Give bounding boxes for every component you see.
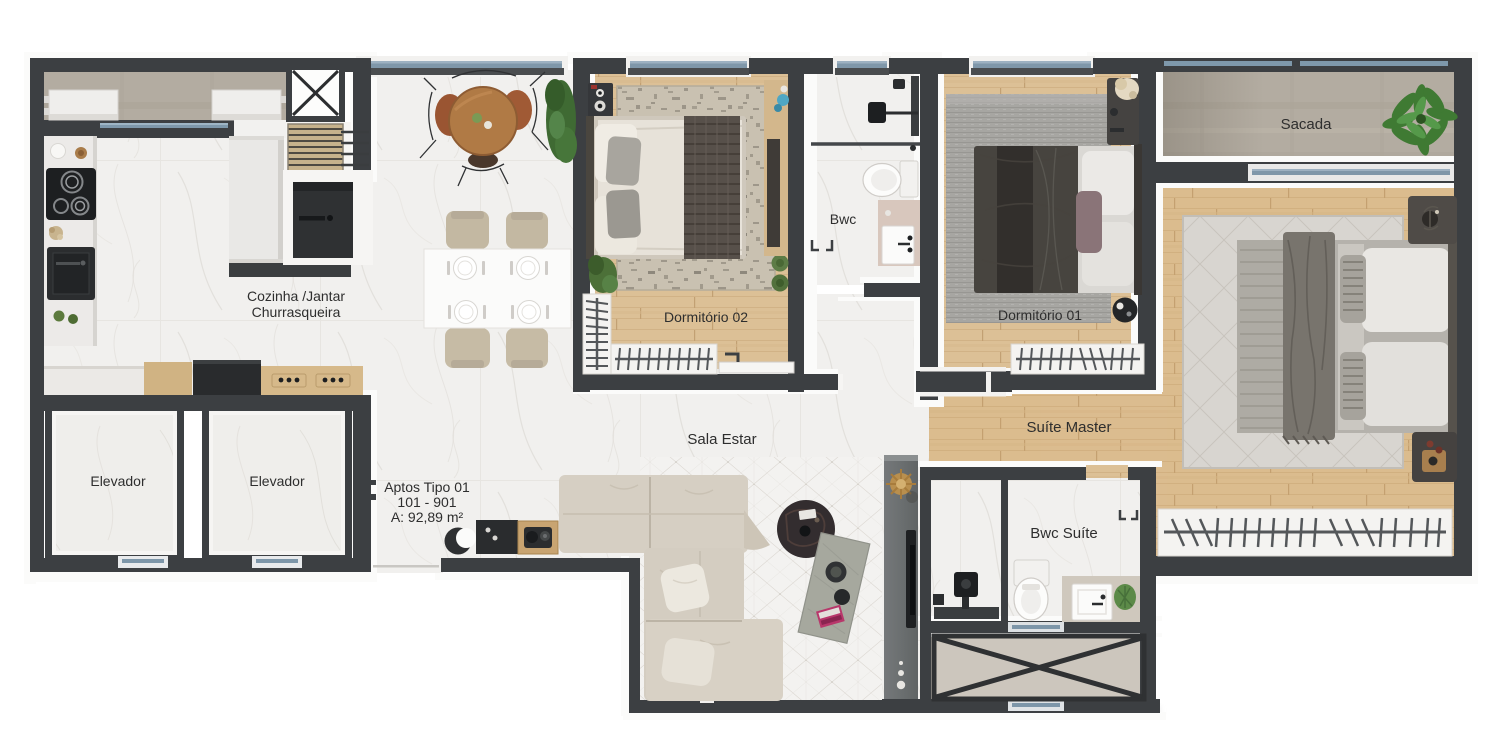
svg-text:Sacada: Sacada — [1281, 116, 1333, 133]
svg-text:Aptos Tipo 01: Aptos Tipo 01 — [384, 479, 470, 495]
svg-text:Suíte Master: Suíte Master — [1026, 419, 1111, 436]
svg-text:Elevador: Elevador — [90, 473, 146, 489]
svg-text:Dormitório 01: Dormitório 01 — [998, 307, 1082, 323]
svg-text:Bwc Suíte: Bwc Suíte — [1030, 525, 1098, 542]
svg-text:Dormitório 02: Dormitório 02 — [664, 309, 748, 325]
svg-text:A: 92,89 m²: A: 92,89 m² — [391, 509, 464, 525]
svg-text:Elevador: Elevador — [249, 473, 305, 489]
svg-text:Bwc: Bwc — [830, 211, 856, 227]
svg-text:101 - 901: 101 - 901 — [397, 494, 456, 510]
svg-text:Churrasqueira: Churrasqueira — [252, 304, 341, 320]
svg-text:Cozinha /Jantar: Cozinha /Jantar — [247, 288, 345, 304]
svg-text:Sala Estar: Sala Estar — [687, 431, 756, 448]
